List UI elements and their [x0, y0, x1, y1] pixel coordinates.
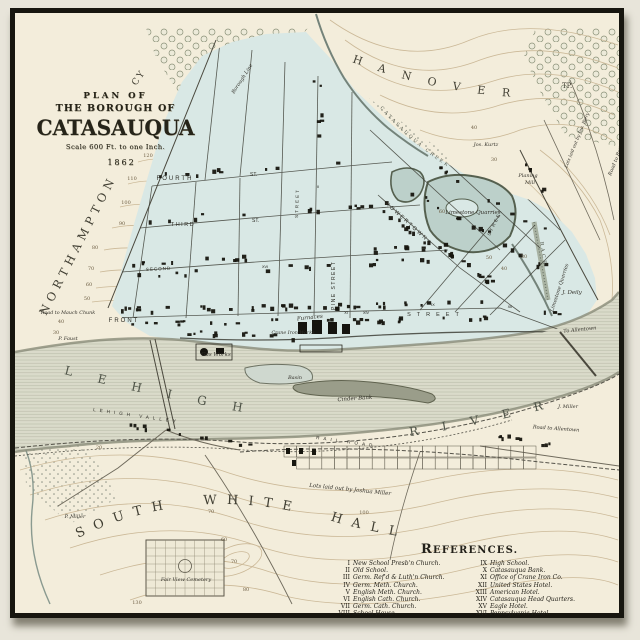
- label-p-miller: P. Miller: [64, 514, 86, 520]
- references-title: REFERENCES.: [335, 542, 623, 557]
- contour-number: 70: [231, 559, 237, 565]
- title-scale: Scale 600 Ft. to one Inch.: [33, 143, 198, 151]
- map-frame: HANOVER TP. NORTHAMPTON CY SOUTH WHITE H…: [10, 8, 624, 618]
- label-planing-mill-2: Mill: [524, 180, 535, 186]
- reference-item: VIEnglish Cath. Church.: [335, 596, 445, 603]
- map-sheet: HANOVER TP. NORTHAMPTON CY SOUTH WHITE H…: [0, 0, 640, 640]
- title-catasauqua: CATASAUQUA: [36, 115, 194, 140]
- reference-item: IXHigh School.: [472, 560, 575, 567]
- contour-number: 40: [501, 266, 507, 272]
- reference-item: IIIGerm. Ref'd & Luth'n Church.: [335, 574, 445, 581]
- title-plan-of: PLAN OF: [33, 91, 198, 101]
- references-legend: REFERENCES. INew School Presb'n Church. …: [335, 542, 623, 560]
- contour-number: 40: [58, 319, 64, 325]
- contour-number: 50: [486, 255, 492, 261]
- reference-item: XIIUnited States Hotel.: [472, 582, 575, 589]
- reference-item: XIOffice of Crane Iron Co.: [472, 574, 575, 581]
- label-hanover-tp: TP.: [562, 82, 572, 90]
- reference-item: XVIPennsylvania Hotel.: [472, 610, 575, 617]
- building-numeral: XI: [344, 311, 348, 315]
- contour-number: 60: [86, 282, 92, 288]
- reference-item: VIIGerm. Cath. Church.: [335, 603, 445, 610]
- basin-shape: [245, 364, 313, 384]
- contour-number: 70: [88, 266, 94, 272]
- contour-number: 60: [439, 209, 445, 215]
- label-gas-works: Gas Works: [201, 352, 231, 358]
- references-right-column: IXHigh School. XCatasauqua Bank. XIOffic…: [472, 560, 575, 618]
- reference-item: VIIISchool House.: [335, 610, 445, 617]
- label-fourth-street: FOURTH: [157, 176, 194, 182]
- contour-number: 90: [119, 221, 125, 227]
- reference-item: VEnglish Meth. Church.: [335, 589, 445, 596]
- contour-number: 60: [221, 537, 227, 543]
- contour-number: 30: [53, 330, 59, 336]
- label-j-miller: J. Miller: [557, 404, 579, 410]
- contour-number: 30: [491, 157, 497, 163]
- title-year: 1862: [45, 158, 198, 167]
- references-left-column: INew School Presb'n Church. IIOld School…: [335, 560, 445, 618]
- label-basin: Basin: [287, 375, 302, 381]
- building-numeral: XIV: [363, 311, 370, 315]
- label-front-street-word: STREET: [407, 312, 465, 318]
- contour-number: 80: [243, 587, 249, 593]
- contour-number: 40: [471, 125, 477, 131]
- building-numeral: II: [317, 185, 319, 189]
- label-p-faust: P. Faust: [57, 336, 78, 342]
- contour-number: 30: [521, 254, 527, 260]
- title-block: PLAN OF THE BOROUGH OF CATASAUQUA Scale …: [33, 91, 198, 167]
- label-front-street: FRONT: [109, 318, 140, 324]
- contour-number: 110: [127, 176, 137, 182]
- label-fourth-st-abbr: ST.: [250, 172, 257, 178]
- label-pine-street: PINE STREET: [331, 261, 337, 310]
- contour-number: 130: [132, 600, 142, 606]
- fair-view-cemetery: [146, 540, 224, 596]
- contour-number: 70: [208, 509, 214, 515]
- reference-item: XCatasauqua Bank.: [472, 567, 575, 574]
- building-numeral: XII: [508, 305, 513, 309]
- reference-item: IIOld School.: [335, 567, 445, 574]
- contour-number: 20: [96, 445, 102, 451]
- label-third-st-abbr: ST.: [252, 218, 259, 224]
- reference-item: IVGerm. Meth. Church.: [335, 582, 445, 589]
- reference-item: XVEagle Hotel.: [472, 603, 575, 610]
- label-limestone-quarries-1: Limestone Quarries: [444, 210, 500, 216]
- building-numeral: IX: [431, 303, 435, 307]
- label-j-deily: J. Deily: [561, 290, 582, 296]
- building-numeral: XVI: [262, 265, 268, 269]
- label-planing-mill-1: Planing: [517, 173, 537, 179]
- label-road-to-mauch-chunk: Road to Mauch Chunk: [40, 310, 95, 316]
- label-street-vertical: STREET: [294, 188, 300, 218]
- label-third-street: THIRD: [171, 222, 195, 228]
- label-crane-iron-works: Crane Iron Works: [271, 330, 315, 336]
- reference-item: XIVCatasauqua Head Quarters.: [472, 596, 575, 603]
- contour-number: 50: [84, 296, 90, 302]
- contour-number: 80: [92, 245, 98, 251]
- title-borough-of: THE BOROUGH OF: [33, 103, 198, 114]
- reference-item: XIIIAmerican Hotel.: [472, 589, 575, 596]
- label-jos-kurtz: Jos. Kurtz: [473, 142, 499, 148]
- label-fair-view-cemetery: Fair View Cemetery: [160, 577, 211, 583]
- reference-item: INew School Presb'n Church.: [335, 560, 445, 567]
- contour-number: 100: [359, 510, 369, 516]
- contour-number: 100: [121, 200, 131, 206]
